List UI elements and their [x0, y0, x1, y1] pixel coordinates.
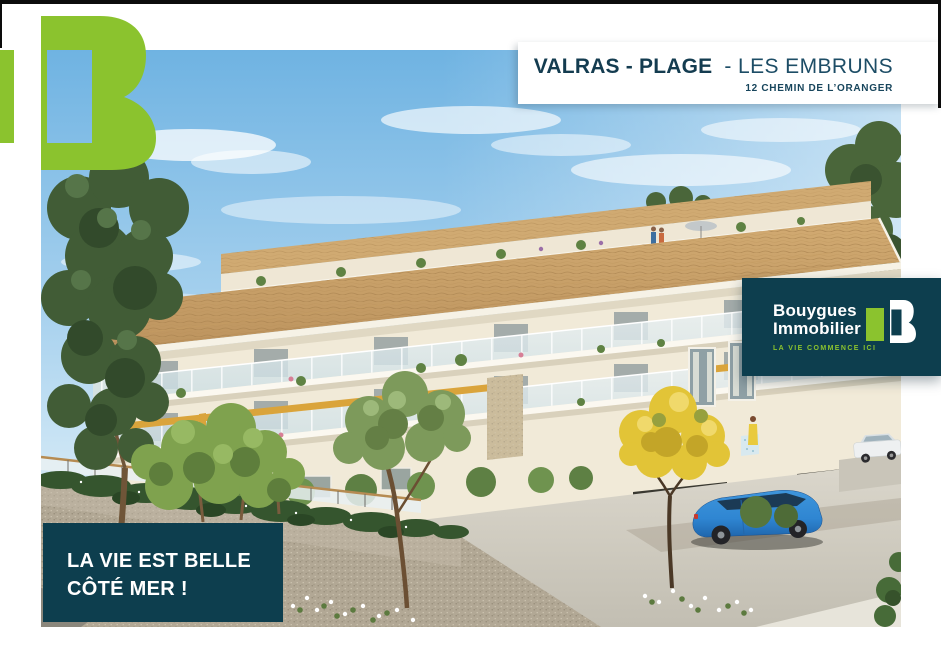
- flyer-page: LA VIE EST BELLE CÔTÉ MER ! Bouygues Imm…: [0, 0, 941, 667]
- bouygues-b-logo-icon: [0, 16, 160, 170]
- brand-wordmark: Bouygues Immobilier LA VIE COMMENCE ICI: [773, 302, 876, 352]
- program-header: VALRAS - PLAGE - LES EMBRUNS 12 CHEMIN D…: [518, 42, 941, 104]
- program-title: VALRAS - PLAGE - LES EMBRUNS: [518, 55, 893, 79]
- brand-name-line1: Bouygues: [773, 302, 876, 320]
- program-name: - LES EMBRUNS: [724, 55, 893, 78]
- caption-line2: CÔTÉ MER !: [67, 575, 283, 603]
- brand-name-line2: Immobilier: [773, 320, 876, 338]
- caption-line1: LA VIE EST BELLE: [67, 547, 283, 575]
- program-address: 12 CHEMIN DE L’ORANGER: [518, 83, 893, 94]
- brand-tagline: LA VIE COMMENCE ICI: [773, 345, 876, 352]
- brand-card: Bouygues Immobilier LA VIE COMMENCE ICI: [742, 278, 941, 376]
- caption-banner: LA VIE EST BELLE CÔTÉ MER !: [43, 523, 283, 622]
- bouygues-b-logomark-icon: [866, 300, 916, 344]
- program-city: VALRAS - PLAGE: [534, 55, 713, 78]
- frame-border-top: [0, 0, 941, 4]
- frame-border-left: [0, 0, 2, 48]
